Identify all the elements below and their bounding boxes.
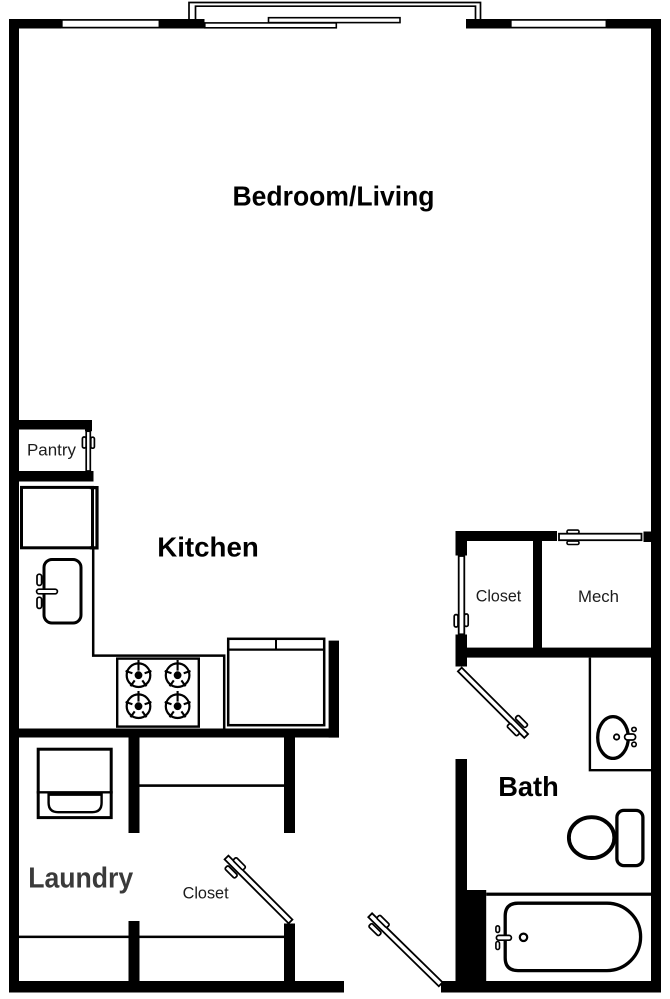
svg-text:Laundry: Laundry (28, 863, 133, 895)
svg-text:Bedroom/Living: Bedroom/Living (233, 181, 435, 212)
svg-text:Closet: Closet (183, 884, 229, 903)
svg-text:Kitchen: Kitchen (157, 532, 259, 563)
svg-text:Mech: Mech (578, 587, 619, 606)
svg-text:Pantry: Pantry (27, 442, 77, 460)
svg-text:Bath: Bath (498, 771, 559, 802)
svg-text:Closet: Closet (476, 587, 522, 606)
